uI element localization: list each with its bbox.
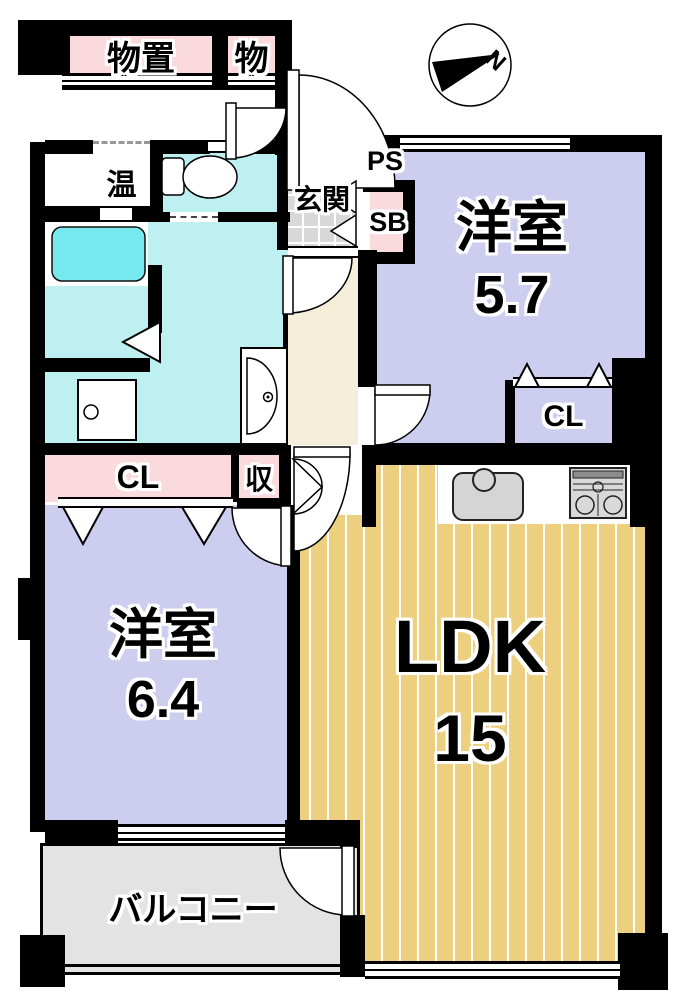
label-entrance: 玄関 bbox=[288, 178, 356, 218]
label-storage-large: 物置 bbox=[70, 34, 212, 76]
western1-door-leaf bbox=[375, 385, 430, 395]
bathtub-icon bbox=[52, 227, 145, 281]
washbasin-icon bbox=[241, 348, 287, 444]
washroom-door-swing bbox=[288, 258, 352, 313]
stove-icon bbox=[570, 468, 626, 518]
label-ldk-size: 15 bbox=[360, 698, 580, 778]
storage-door-leaf bbox=[226, 103, 236, 159]
kitchen-sink-icon bbox=[453, 469, 523, 520]
closet-left-door-triangle bbox=[182, 507, 226, 544]
balcony-door-leaf bbox=[342, 846, 354, 916]
closet-right-door-triangle bbox=[515, 364, 539, 387]
label-western-1: 洋室 bbox=[392, 186, 632, 260]
entry-door-leaf bbox=[287, 70, 299, 190]
washroom-door-leaf bbox=[283, 256, 293, 314]
label-closet-left: CL bbox=[45, 453, 231, 502]
closet-left-door-triangle bbox=[63, 507, 103, 544]
label-western-1-size: 5.7 bbox=[402, 262, 622, 328]
label-water-heater: 温 bbox=[93, 158, 150, 206]
label-storage-closet: 収 bbox=[239, 453, 279, 502]
label-closet-right: CL bbox=[515, 392, 612, 442]
bathroom-door-triangle bbox=[123, 322, 160, 362]
floor-plan: N bbox=[0, 0, 682, 998]
closet-right-door-triangle bbox=[587, 364, 611, 387]
western2-door-leaf bbox=[281, 506, 291, 566]
western1-door-swing bbox=[375, 390, 430, 445]
label-western-2-size: 6.4 bbox=[53, 668, 273, 732]
ldk-door-leaf bbox=[294, 447, 350, 457]
washing-machine-icon bbox=[78, 380, 136, 440]
label-storage-small: 物 bbox=[228, 34, 275, 76]
label-balcony: バルコニー bbox=[53, 884, 333, 928]
compass: N bbox=[429, 24, 511, 106]
storage-door-swing bbox=[231, 108, 286, 158]
label-western-2: 洋室 bbox=[43, 593, 283, 665]
toilet-icon bbox=[162, 156, 237, 198]
label-pipe-space: PS bbox=[356, 140, 414, 182]
shoe-box-door-triangle bbox=[331, 215, 356, 246]
label-ldk: LDK bbox=[340, 600, 600, 692]
